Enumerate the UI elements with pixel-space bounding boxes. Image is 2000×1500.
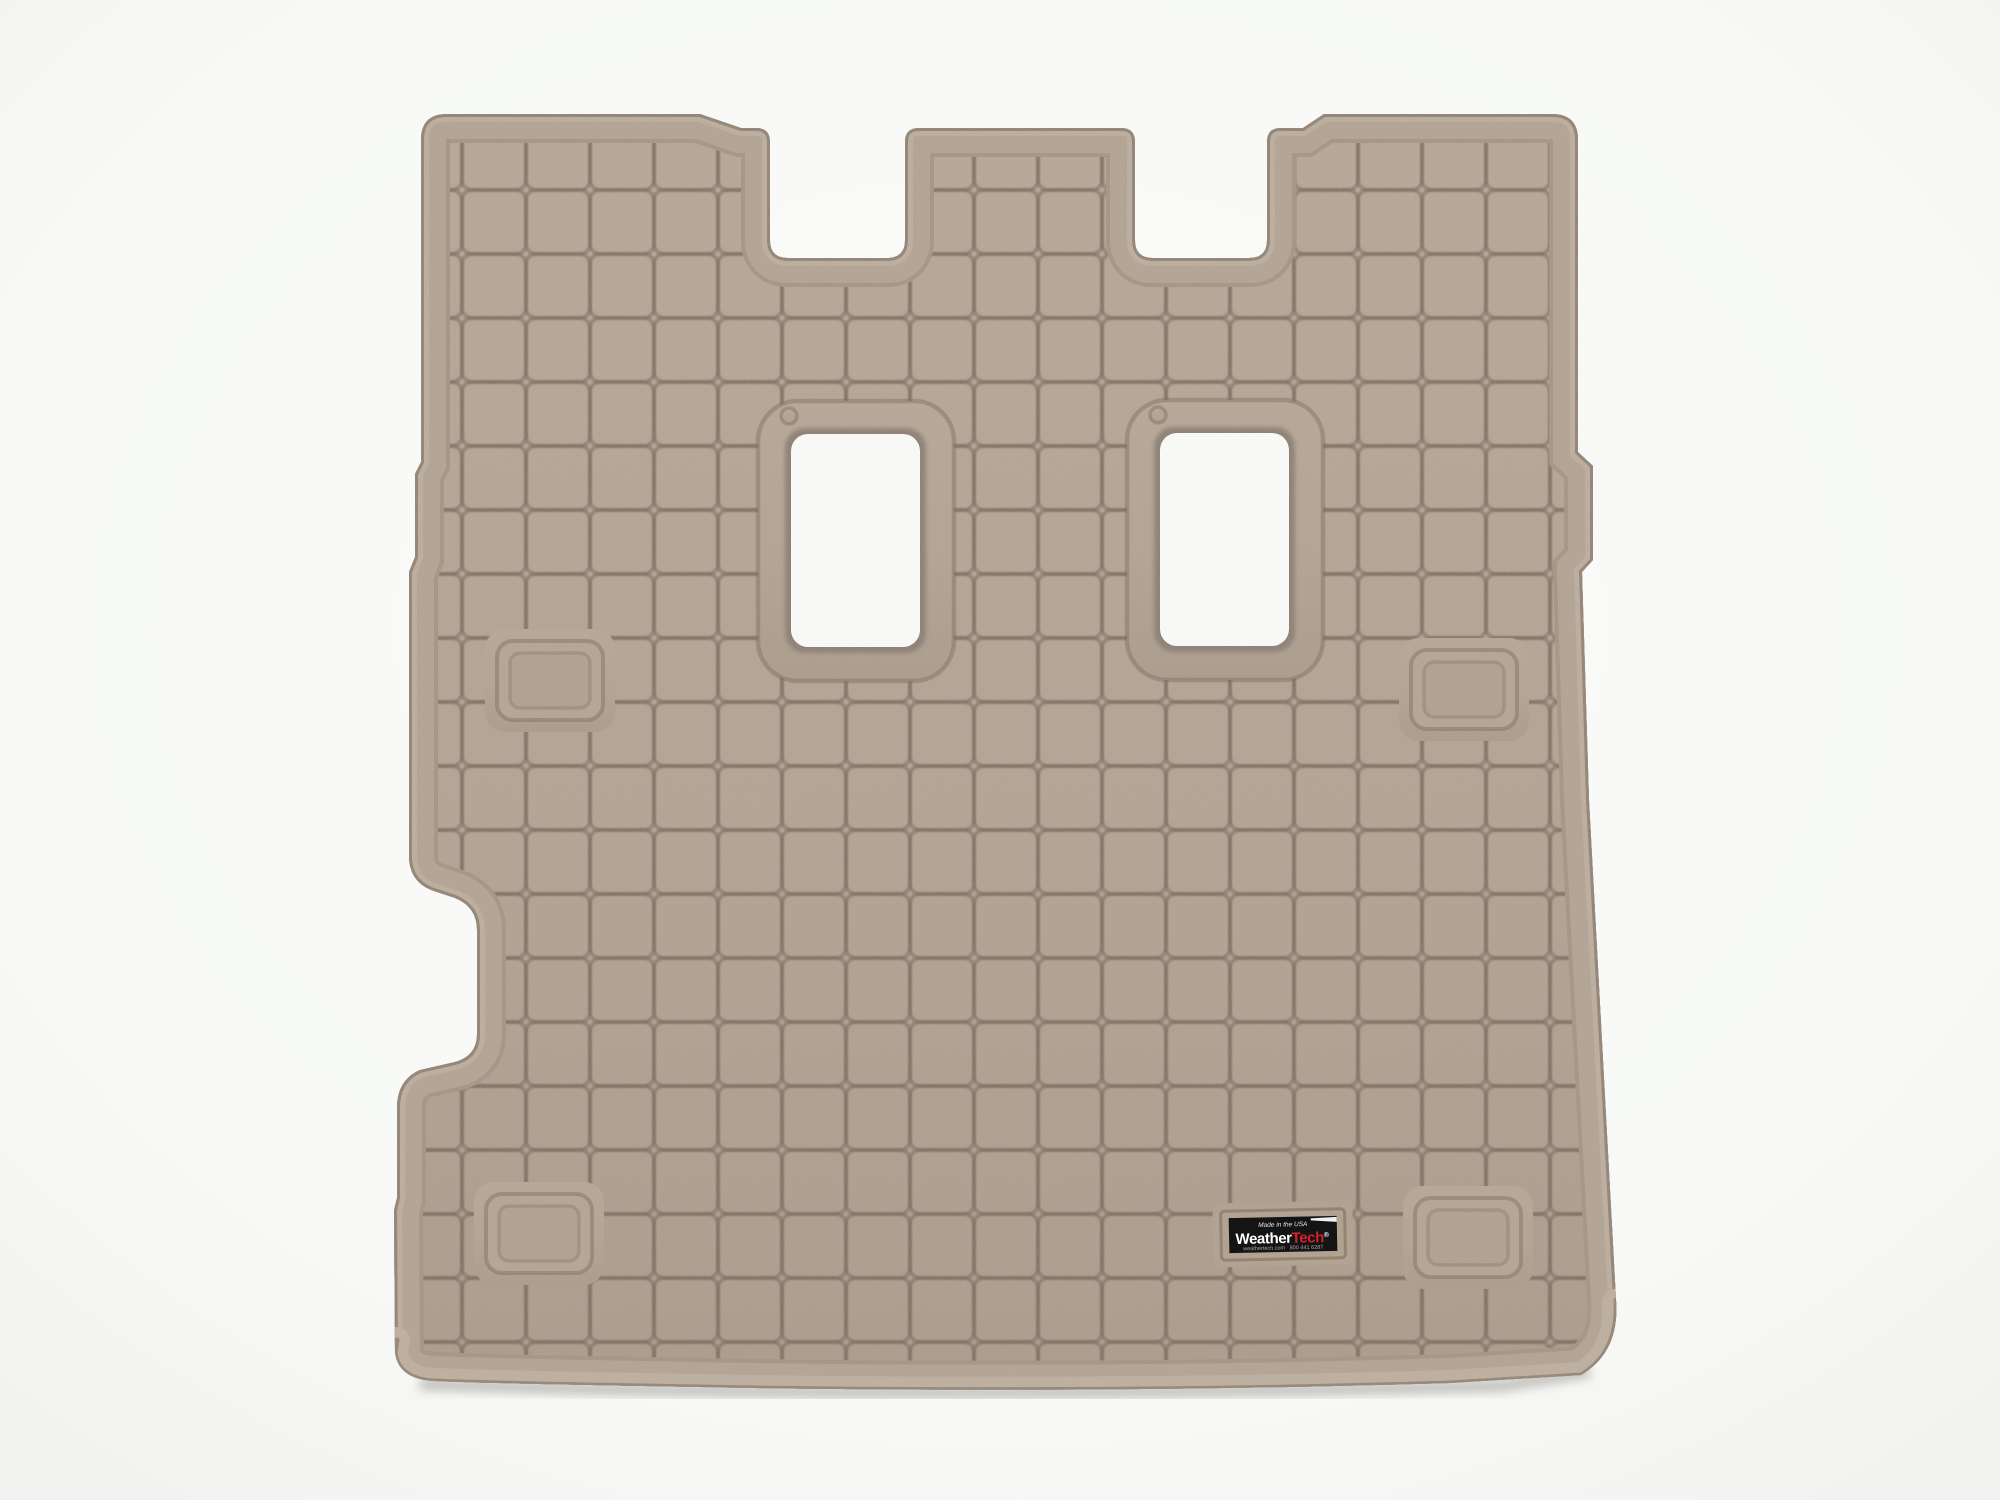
svg-text:Made in the USA: Made in the USA bbox=[1258, 1221, 1307, 1229]
